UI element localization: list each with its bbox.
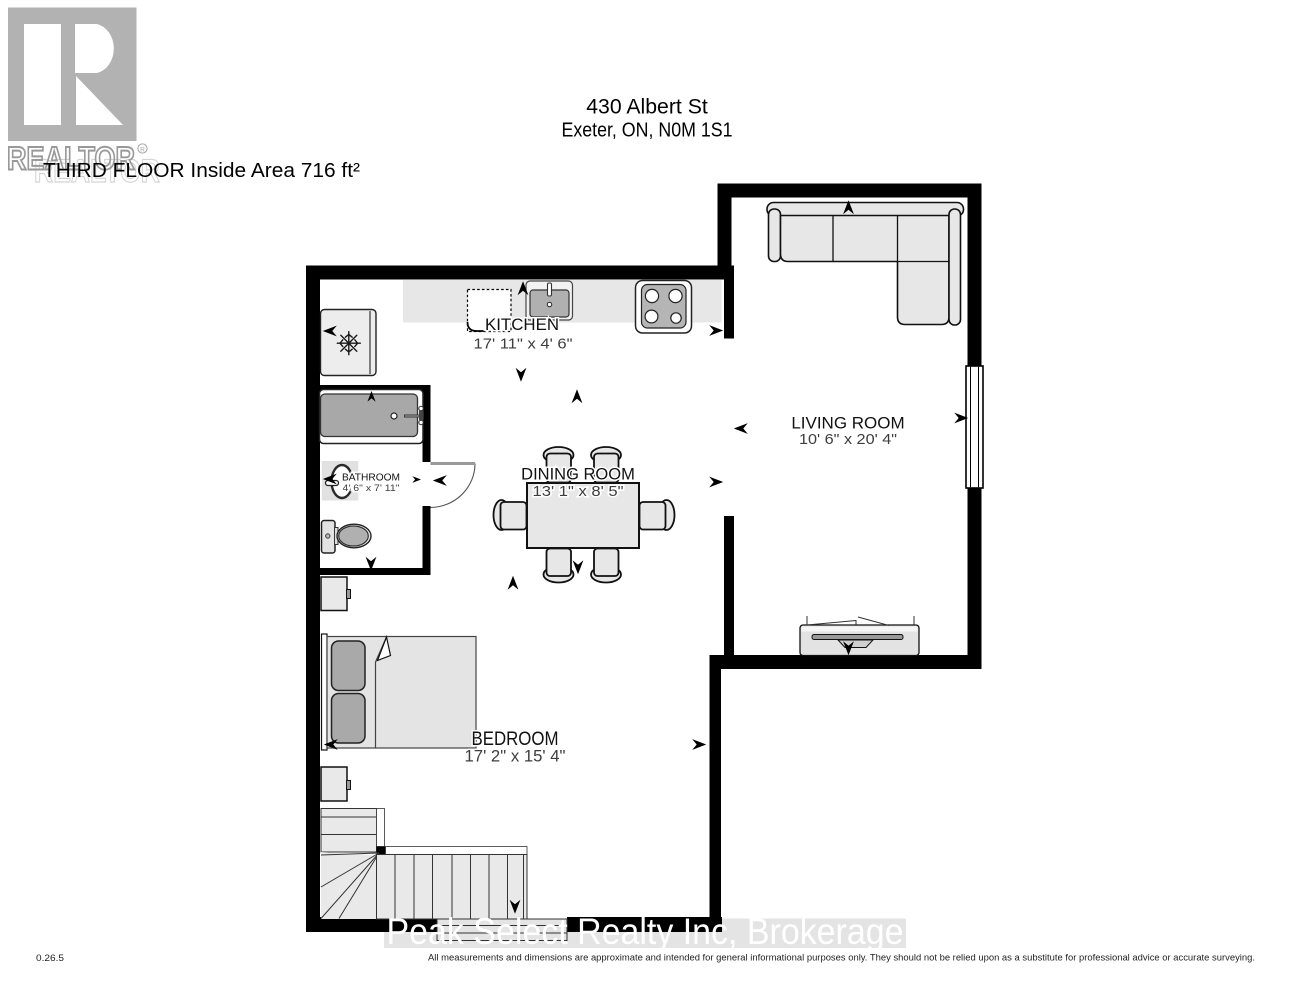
svg-text:KITCHEN: KITCHEN (485, 315, 559, 334)
svg-text:THIRD FLOOR Inside Area 716 ft: THIRD FLOOR Inside Area 716 ft² (43, 160, 360, 182)
svg-text:10' 6" x 20' 4": 10' 6" x 20' 4" (799, 431, 897, 448)
svg-text:Exeter, ON, N0M 1S1: Exeter, ON, N0M 1S1 (562, 120, 733, 142)
svg-text:13' 1" x 8' 5": 13' 1" x 8' 5" (533, 483, 624, 500)
svg-text:0.26.5: 0.26.5 (36, 953, 64, 964)
svg-text:All measurements and dimension: All measurements and dimensions are appr… (428, 953, 1255, 964)
svg-text:4' 6" x 7' 11": 4' 6" x 7' 11" (343, 483, 400, 494)
svg-text:BATHROOM: BATHROOM (342, 472, 400, 484)
svg-text:LIVING ROOM: LIVING ROOM (791, 414, 904, 433)
svg-text:R: R (140, 147, 145, 154)
svg-text:17' 11" x 4' 6": 17' 11" x 4' 6" (474, 336, 573, 353)
svg-text:Peak Select Realty Inc, Broker: Peak Select Realty Inc, Brokerage (387, 911, 904, 952)
svg-text:430 Albert St: 430 Albert St (586, 96, 708, 119)
svg-text:17' 2" x 15' 4": 17' 2" x 15' 4" (465, 747, 566, 766)
svg-text:DINING ROOM: DINING ROOM (521, 466, 635, 484)
